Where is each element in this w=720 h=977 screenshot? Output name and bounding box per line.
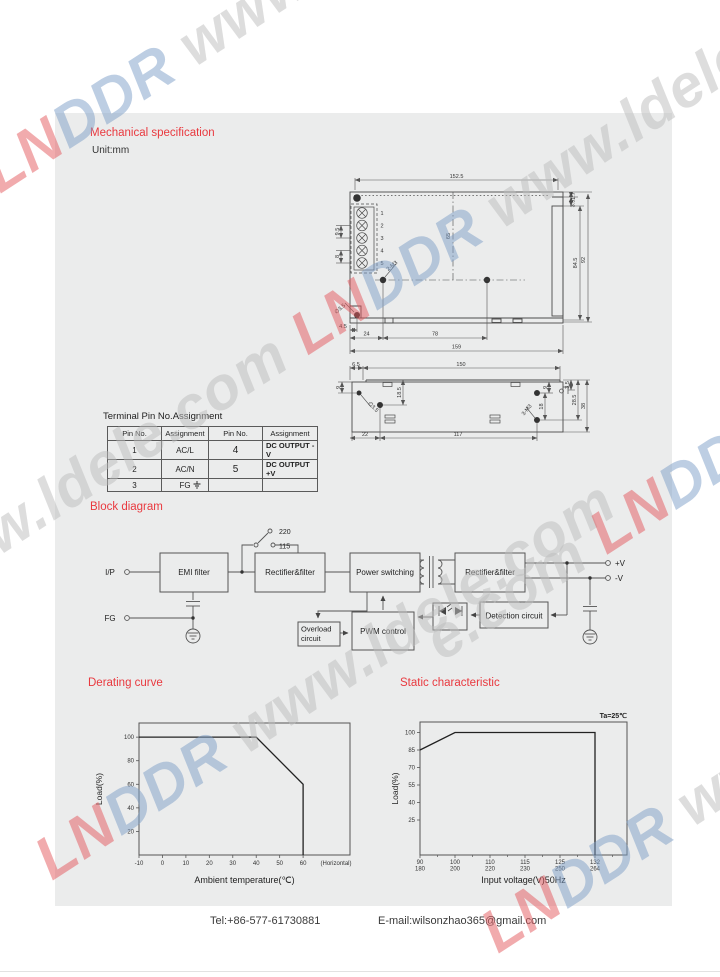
- dim-label: 8: [335, 255, 341, 258]
- output-minus-label: -V: [615, 574, 624, 583]
- case-outline: [352, 380, 568, 432]
- svg-text:200: 200: [450, 867, 461, 873]
- dim-label: 150: [456, 362, 465, 368]
- mechanical-drawing-top-view: 152.5 1.7 3.5 84.5 92 65 9.5 8 2-M3 ∅3.5…: [330, 170, 620, 360]
- svg-text:Ta=25℃: Ta=25℃: [600, 712, 628, 720]
- assignment-cell: AC/N: [162, 460, 209, 479]
- footer-email: E-mail:wilsonzhao365@gmail.com: [378, 915, 546, 927]
- fg-terminal-label: FG: [104, 614, 115, 623]
- svg-text:(Horizontal): (Horizontal): [320, 861, 351, 867]
- svg-text:30: 30: [229, 861, 236, 867]
- svg-text:Load(%): Load(%): [390, 772, 400, 804]
- input-terminal-label: I/P: [105, 568, 115, 577]
- svg-text:230: 230: [520, 867, 531, 873]
- rectifier-filter-label: Rectifier&filter: [265, 568, 315, 577]
- static-characteristic-title: Static characteristic: [400, 677, 500, 689]
- dim-label: 65: [446, 233, 452, 239]
- optocoupler-symbol: [439, 604, 462, 616]
- svg-text:110: 110: [485, 860, 495, 866]
- svg-text:20: 20: [206, 861, 213, 867]
- svg-text:60: 60: [127, 782, 134, 788]
- dim-label: 1.7: [571, 192, 577, 200]
- svg-text:25: 25: [408, 818, 415, 824]
- output-plus-label: +V: [615, 559, 626, 568]
- dim-label: 3-M3: [521, 404, 534, 417]
- emi-filter-label: EMI filter: [178, 568, 210, 577]
- svg-text:40: 40: [127, 806, 134, 812]
- svg-text:40: 40: [253, 861, 260, 867]
- svg-text:80: 80: [127, 759, 134, 765]
- dim-label: 152.5: [450, 174, 464, 180]
- dimension-labels: 152.5 1.7 3.5 84.5 92 65 9.5 8 2-M3 ∅3.5…: [333, 174, 587, 351]
- svg-text:60: 60: [300, 861, 307, 867]
- assignment-cell: DC OUTPUT +V: [263, 460, 318, 479]
- svg-text:85: 85: [408, 748, 415, 754]
- dim-label: 9.5: [335, 228, 341, 236]
- pin-no-cell: 4: [209, 441, 263, 460]
- page-bottom-divider: [0, 971, 720, 972]
- block-diagram: I/P FG EMI filter Rectifier&filter Power…: [85, 515, 645, 665]
- earth-ground-icon: [193, 481, 201, 489]
- dimension-lines: [336, 178, 592, 354]
- pin-no-cell: [209, 479, 263, 492]
- svg-text:132: 132: [590, 860, 601, 866]
- dim-label: 18.5: [397, 387, 403, 398]
- column-header: Assignment: [263, 427, 318, 441]
- dim-label: 84.5: [573, 258, 579, 269]
- dim-label: 117: [454, 432, 463, 438]
- pin-number: 3: [381, 236, 384, 242]
- svg-text:55: 55: [408, 783, 415, 789]
- dimension-labels: 6.5 150 9 18.5 ∅3.5 9 18 3-M3 3.5 28.5 3…: [336, 362, 587, 438]
- assignment-cell: FG: [162, 479, 209, 492]
- dim-label: 159: [452, 345, 461, 351]
- assignment-cell: DC OUTPUT -V: [263, 441, 318, 460]
- column-header: Pin No.: [209, 427, 263, 441]
- svg-text:220: 220: [485, 867, 496, 873]
- pin-number: 5: [381, 261, 384, 267]
- svg-text:40: 40: [408, 801, 415, 807]
- column-header: Pin No.: [108, 427, 162, 441]
- dim-label: 6.5: [352, 362, 360, 368]
- assignment-cell: [263, 479, 318, 492]
- svg-text:100: 100: [405, 731, 416, 737]
- assignment-cell: AC/L: [162, 441, 209, 460]
- dim-label: 78: [432, 332, 438, 338]
- fg-label: FG: [179, 481, 190, 490]
- table-row: 1 AC/L 4 DC OUTPUT -V: [108, 441, 318, 460]
- column-header: Assignment: [162, 427, 209, 441]
- footer-telephone: Tel:+86-577-61730881: [210, 915, 320, 927]
- voltage-220-label: 220: [279, 529, 291, 536]
- datasheet-page: Mechanical specification Unit:mm: [0, 0, 720, 977]
- table-row: 3 FG: [108, 479, 318, 492]
- svg-text:20: 20: [127, 829, 134, 835]
- svg-text:125: 125: [555, 860, 566, 866]
- dim-label: 24: [363, 332, 369, 338]
- dim-label: 18: [539, 403, 545, 409]
- dimension-lines: [338, 366, 590, 441]
- svg-text:Load(%): Load(%): [94, 773, 104, 805]
- svg-text:264: 264: [590, 867, 601, 873]
- table-header-row: Pin No. Assignment Pin No. Assignment: [108, 427, 318, 441]
- svg-text:10: 10: [183, 861, 190, 867]
- svg-text:50: 50: [276, 861, 283, 867]
- svg-text:115: 115: [520, 860, 530, 866]
- dim-label: 9: [336, 386, 342, 389]
- pin-no-cell: 1: [108, 441, 162, 460]
- watermark-url: www.ldele.com: [151, 0, 575, 88]
- svg-text:70: 70: [408, 766, 415, 772]
- pin-no-cell: 3: [108, 479, 162, 492]
- pin-number: 1: [381, 211, 384, 217]
- svg-text:Input voltage(V)50Hz: Input voltage(V)50Hz: [481, 875, 566, 885]
- dim-label: 38: [581, 403, 587, 409]
- svg-text:Ambient temperature(℃): Ambient temperature(℃): [194, 875, 294, 885]
- pin-numbers: 1 2 3 4 5: [381, 211, 384, 267]
- dim-label: 28.5: [572, 395, 578, 406]
- pwm-control-label: PWM control: [360, 627, 406, 636]
- pin-no-cell: 2: [108, 460, 162, 479]
- svg-text:-10: -10: [135, 861, 144, 867]
- svg-text:0: 0: [161, 861, 165, 867]
- block-diagram-title: Block diagram: [90, 501, 163, 513]
- table-row: 2 AC/N 5 DC OUTPUT +V: [108, 460, 318, 479]
- dim-label: ∅3.5: [366, 400, 380, 414]
- svg-text:100: 100: [124, 735, 135, 741]
- svg-text:90: 90: [417, 860, 424, 866]
- static-characteristic-chart: 2540557085100901801002001102201152301252…: [390, 700, 680, 895]
- terminal-screws: [357, 208, 368, 269]
- mechanical-drawing-side-view: 6.5 150 9 18.5 ∅3.5 9 18 3-M3 3.5 28.5 3…: [330, 360, 620, 460]
- svg-text:250: 250: [555, 867, 566, 873]
- derating-chart: 20406080100-100102030405060(Horizontal)L…: [85, 700, 375, 895]
- derating-chart-plot: 20406080100-100102030405060(Horizontal)L…: [85, 700, 375, 890]
- dim-label: 4.5: [339, 324, 347, 330]
- svg-text:180: 180: [415, 867, 426, 873]
- dim-label: ∅3.5: [333, 302, 347, 315]
- static-characteristic-plot: 2540557085100901801002001102201152301252…: [390, 700, 680, 890]
- svg-text:100: 100: [450, 860, 461, 866]
- dim-label: 22: [362, 432, 368, 438]
- dim-label: 3.5: [571, 200, 577, 208]
- mechanical-spec-title: Mechanical specification: [90, 127, 215, 139]
- overload-label: Overload: [301, 625, 331, 634]
- detection-circuit-label: Detection circuit: [486, 612, 544, 621]
- block-labels: I/P FG EMI filter Rectifier&filter Power…: [104, 529, 625, 643]
- power-switching-label: Power switching: [356, 568, 414, 577]
- dim-label: 9: [543, 386, 549, 389]
- derating-curve-title: Derating curve: [88, 677, 163, 689]
- rectifier-filter-label: Rectifier&filter: [465, 568, 515, 577]
- voltage-115-label: 115: [279, 544, 290, 551]
- dim-label: 92: [581, 257, 587, 263]
- pin-assignment-table: Pin No. Assignment Pin No. Assignment 1 …: [107, 426, 318, 492]
- dim-label: 3.5: [565, 381, 571, 389]
- pin-number: 4: [381, 249, 384, 255]
- overload-label: circuit: [301, 634, 322, 643]
- pin-no-cell: 5: [209, 460, 263, 479]
- pin-table-title: Terminal Pin No.Assignment: [103, 411, 222, 422]
- pin-number: 2: [381, 224, 384, 230]
- dim-label: 2-M3: [386, 260, 399, 273]
- unit-label: Unit:mm: [92, 145, 129, 156]
